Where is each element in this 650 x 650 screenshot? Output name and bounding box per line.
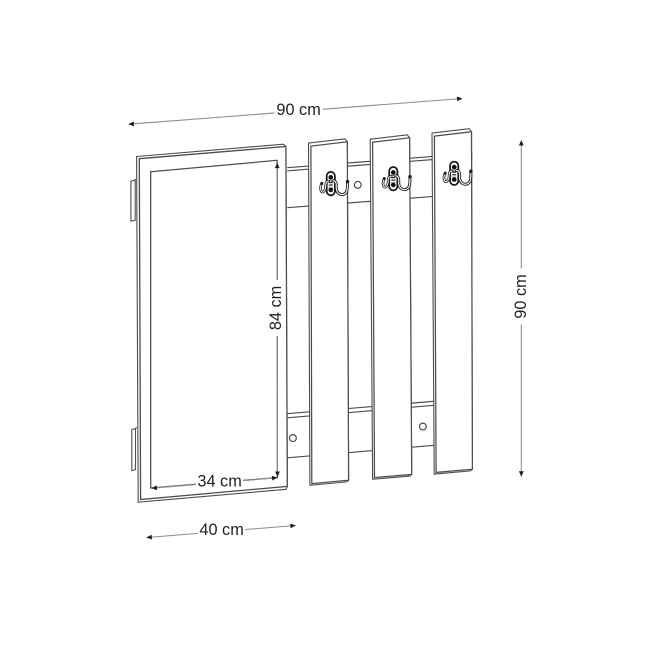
svg-text:90 cm: 90 cm bbox=[512, 274, 530, 318]
svg-text:90 cm: 90 cm bbox=[276, 101, 320, 119]
svg-text:40 cm: 40 cm bbox=[199, 521, 243, 539]
svg-text:84 cm: 84 cm bbox=[267, 286, 285, 330]
svg-text:34 cm: 34 cm bbox=[197, 472, 241, 490]
